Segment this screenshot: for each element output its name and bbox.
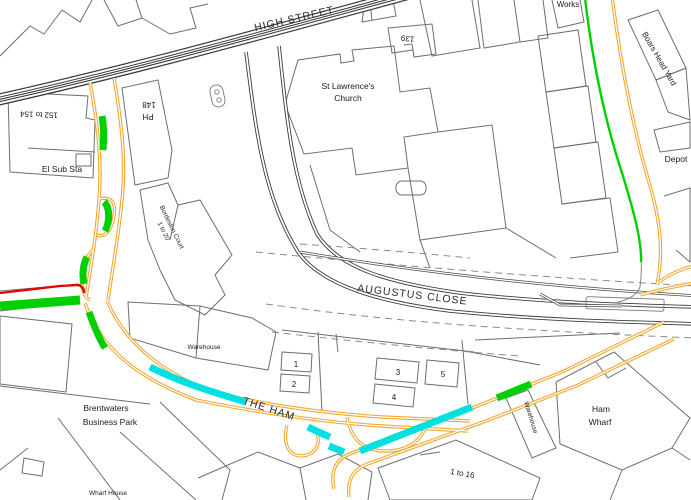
- label-plot-2: 2: [292, 380, 297, 389]
- label-bordeston-court: Bordeston Court 1 to 20: [150, 205, 185, 255]
- label-148: 148: [142, 100, 156, 109]
- map-canvas[interactable]: HIGH STREET AUGUSTUS CLOSE THE HAM St La…: [0, 0, 691, 500]
- label-st-lawrences-church: St Lawrence's Church: [321, 81, 374, 103]
- label-139: 139: [400, 33, 415, 44]
- label-plot-4: 4: [392, 393, 397, 402]
- label-ham-wharf: Ham Wharf: [589, 404, 612, 427]
- label-ph: PH: [142, 112, 153, 121]
- traffic-island: [209, 84, 226, 108]
- label-plot-3: 3: [396, 368, 401, 377]
- svg-text:Business Park: Business Park: [83, 417, 138, 427]
- plot-numbers: 1 2 3 4 5: [292, 360, 446, 402]
- label-depot: Depot: [665, 154, 688, 164]
- label-warehouse-east: Warehouse: [522, 401, 538, 435]
- label-brentwaters-business-park: Brentwaters Business Park: [83, 403, 138, 427]
- label-warehouse-center: Warehouse: [188, 344, 221, 351]
- red-marking: [0, 285, 84, 293]
- svg-text:Wharf: Wharf: [589, 417, 612, 427]
- map-screenshot: HIGH STREET AUGUSTUS CLOSE THE HAM St La…: [0, 0, 691, 500]
- label-the-ham: THE HAM: [241, 395, 296, 423]
- label-152-to-154: 152 to 154: [19, 109, 58, 119]
- label-wharf-house: Wharf House: [89, 490, 127, 497]
- label-1-to-16: 1 to 16: [450, 467, 476, 480]
- label-plot-1: 1: [294, 360, 299, 369]
- svg-text:Church: Church: [334, 93, 362, 103]
- label-el-sub-sta: El Sub Sta: [42, 164, 82, 174]
- svg-text:Brentwaters: Brentwaters: [83, 403, 128, 413]
- svg-text:Ham: Ham: [592, 404, 610, 414]
- label-works: Works: [557, 0, 580, 9]
- svg-text:St Lawrence's: St Lawrence's: [321, 81, 374, 91]
- label-plot-5: 5: [441, 370, 446, 379]
